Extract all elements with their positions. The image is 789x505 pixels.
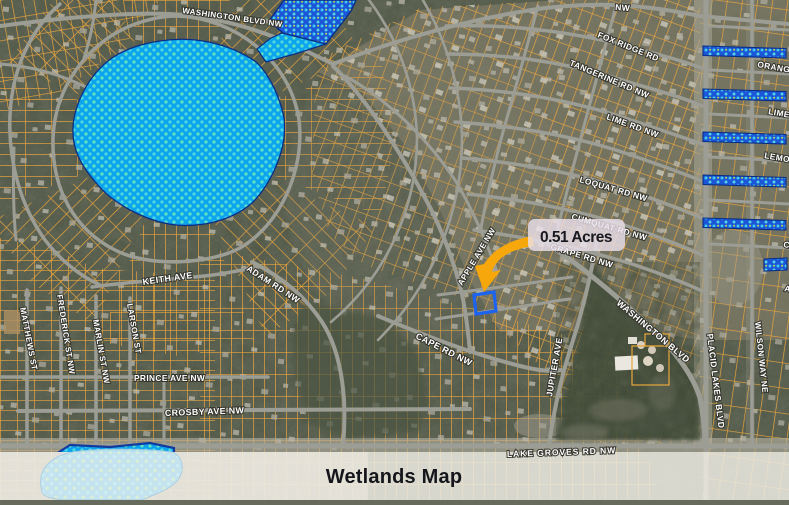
svg-text:PRINCE AVE NW: PRINCE AVE NW — [134, 373, 205, 383]
svg-text:NW: NW — [615, 2, 631, 13]
svg-text:0.51 Acres: 0.51 Acres — [540, 229, 612, 246]
svg-text:Wetlands Map: Wetlands Map — [326, 466, 463, 488]
